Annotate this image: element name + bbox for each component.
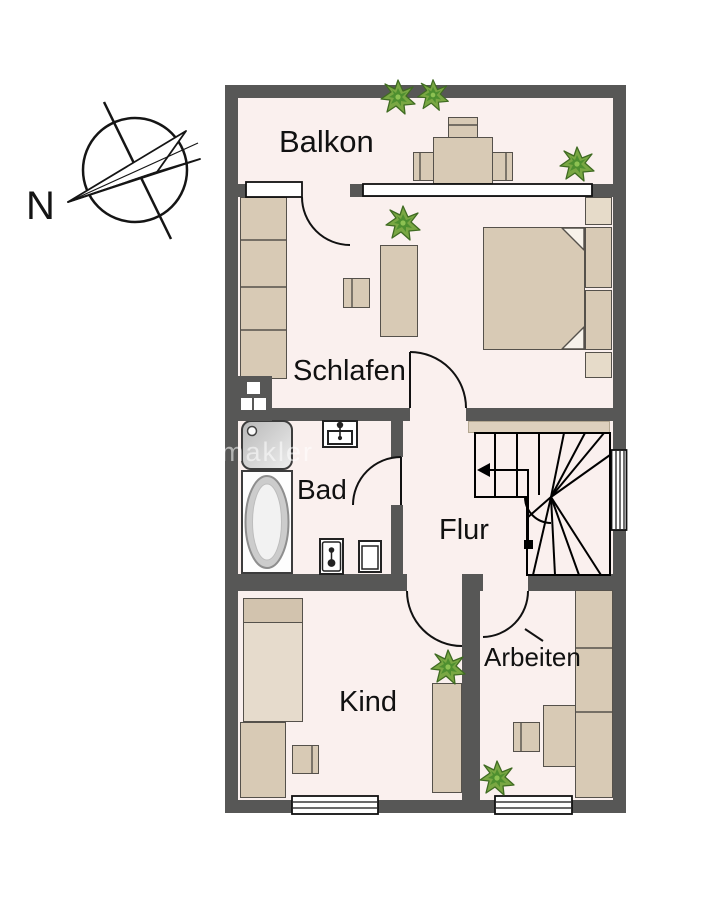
wall-balcony	[238, 184, 613, 197]
wall-bad-east-lower	[391, 505, 403, 574]
balcony-chair	[413, 152, 435, 181]
room-label-schlafen: Schlafen	[293, 355, 406, 388]
room-label-kind: Kind	[339, 686, 397, 719]
toilet-icon	[319, 538, 344, 575]
balcony-door-opening	[302, 184, 350, 197]
room-label-balkon: Balkon	[279, 124, 374, 160]
nightstand	[585, 197, 612, 225]
sideboard	[380, 245, 418, 337]
sink-icon	[322, 420, 358, 448]
room-label-bad: Bad	[297, 474, 347, 506]
balcony-chair	[491, 152, 513, 181]
headboard	[585, 290, 612, 350]
side-table	[343, 278, 370, 308]
shelf-unit	[575, 590, 613, 798]
outer-wall-right	[613, 85, 626, 813]
bed-pillow	[243, 598, 303, 623]
desk	[543, 705, 576, 767]
wardrobe	[432, 683, 462, 793]
arbeiten-door-opening	[483, 574, 528, 591]
dresser	[240, 722, 286, 798]
nightstand	[585, 352, 612, 378]
wall-bad-east-upper	[391, 421, 403, 457]
kind-door-opening	[407, 574, 462, 591]
desk-chair	[513, 722, 540, 752]
room-label-arbeiten: Arbeiten	[484, 642, 581, 673]
room-label-flur: Flur	[439, 514, 489, 547]
balcony-table	[433, 137, 493, 184]
floor-plan-page: N Balkon Schlafen Bad Flur Kind Arbeiten…	[0, 0, 707, 900]
balcony-chair	[448, 117, 478, 138]
compass-north-label: N	[26, 184, 55, 229]
headboard	[585, 227, 612, 288]
wardrobe	[240, 197, 287, 379]
compass-icon	[68, 102, 200, 239]
wall-kind-arbeiten-divider	[462, 574, 480, 800]
bidet-icon	[358, 540, 382, 573]
side-table	[292, 745, 319, 774]
outer-wall-top	[225, 85, 626, 98]
schlafen-door-opening	[410, 408, 466, 421]
double-bed	[483, 227, 585, 350]
outer-wall-bottom	[225, 800, 626, 813]
watermark: makler	[221, 437, 314, 468]
bathtub-icon	[241, 470, 293, 574]
stair-landing	[468, 421, 610, 433]
